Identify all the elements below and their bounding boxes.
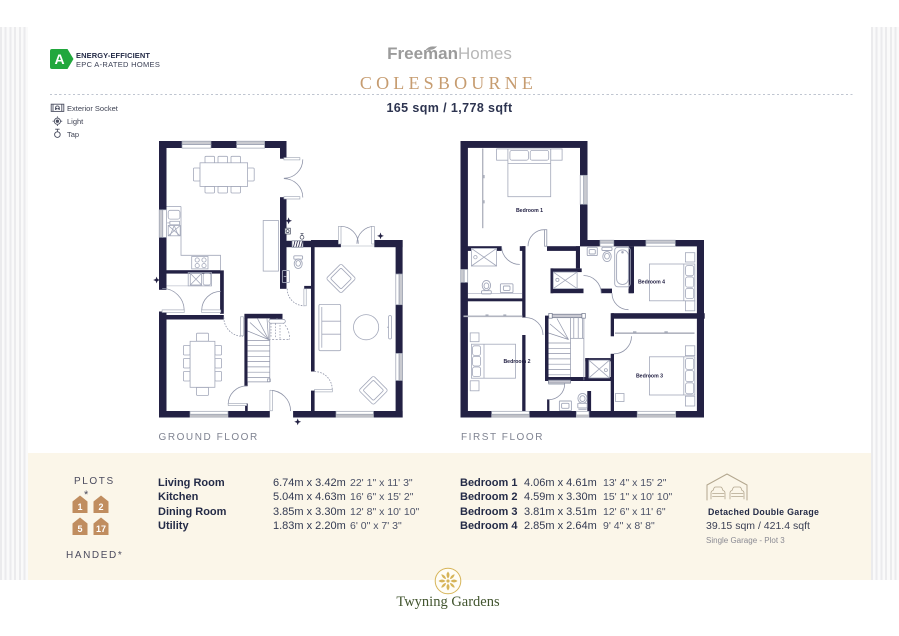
svg-text:Bedroom 4: Bedroom 4	[638, 280, 665, 286]
svg-text:Bedroom 3: Bedroom 3	[636, 374, 663, 380]
svg-text:Bedroom 1: Bedroom 1	[516, 208, 543, 214]
svg-text:Bedroom 2: Bedroom 2	[503, 359, 530, 365]
